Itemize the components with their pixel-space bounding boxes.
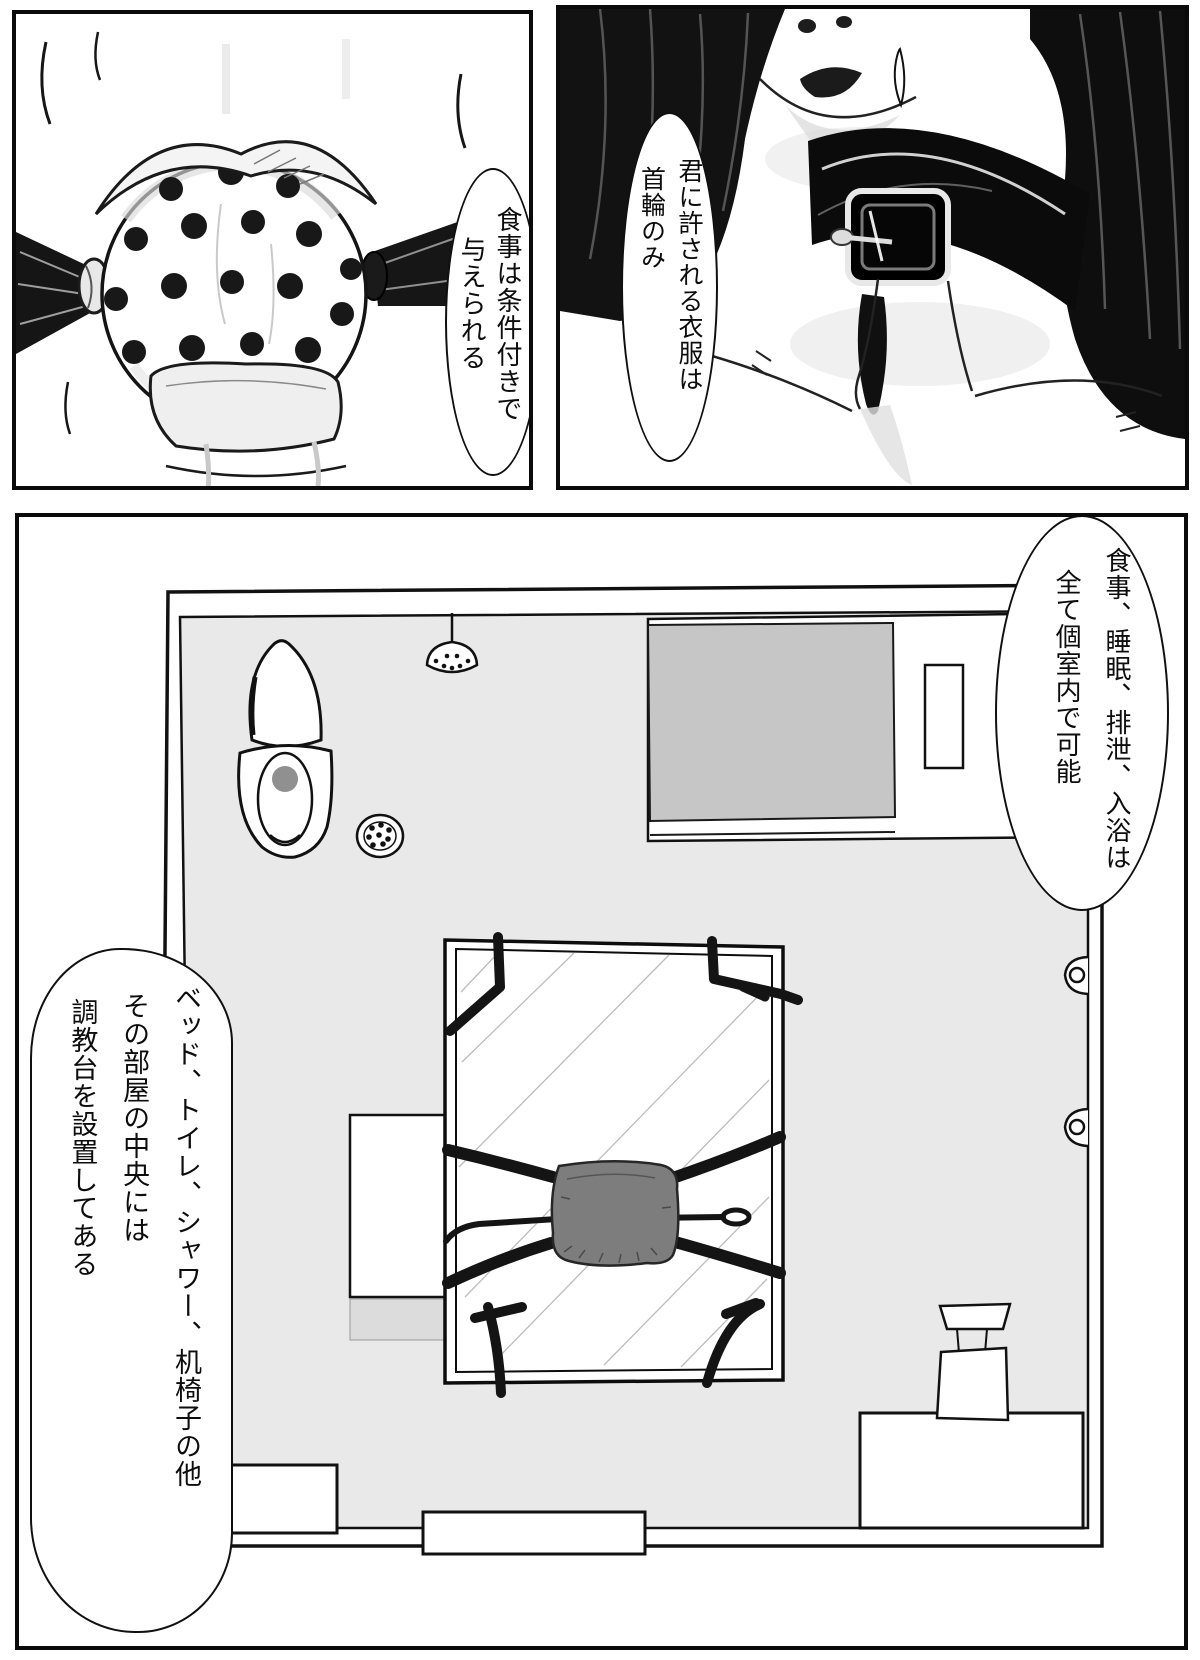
speech-bubble-clothing: 君に許される衣服は 首輪のみ: [621, 112, 718, 462]
sweat-drop: [895, 49, 904, 105]
collar-buckle: [831, 191, 948, 283]
skin-shading: [790, 302, 1050, 386]
gag-strap-left: [16, 232, 109, 354]
lower-lip: [150, 363, 346, 486]
training-platform: [445, 937, 798, 1393]
bubble-text-column: 食事は条件付きで: [489, 206, 525, 454]
bubble-text: 食事、睡眠、排泄、入浴は 全て個室内で可能: [1041, 547, 1141, 895]
bubble-text-column: 君に許される衣服は: [670, 158, 708, 442]
bubble-text-column: 全て個室内で可能: [1041, 547, 1091, 895]
cabinet: [225, 1465, 337, 1533]
lips: [800, 67, 862, 97]
restraint-cushion: [552, 1161, 678, 1265]
bubble-text: 君に許される衣服は 首輪のみ: [632, 158, 707, 442]
bubble-text-column: 食事、睡眠、排泄、入浴は: [1091, 547, 1141, 895]
speech-bubble-food: 食事は条件付きで 与えられる: [445, 168, 533, 476]
mattress: [648, 623, 895, 821]
side-table-strip: [350, 1299, 447, 1340]
bubble-text: ベッド、トイレ、シャワー、机椅子の他 その部屋の中央には 調教台を設置してある: [56, 984, 211, 1615]
toilet-drain: [272, 766, 298, 792]
bubble-text-column: その部屋の中央には: [107, 984, 159, 1615]
pillow: [925, 665, 963, 768]
bubble-text-column: 与えられる: [453, 206, 489, 454]
speech-bubble-room-contents: ベッド、トイレ、シャワー、机椅子の他 その部屋の中央には 調教台を設置してある: [30, 948, 233, 1633]
panel-bottom-floor-plan: 食事、睡眠、排泄、入浴は 全て個室内で可能 ベッド、トイレ、シャワー、机椅子の他…: [15, 513, 1188, 1650]
floor-drain: [357, 815, 403, 857]
bubble-text-column: ベッド、トイレ、シャワー、机椅子の他: [159, 984, 211, 1615]
chair: [937, 1304, 1010, 1420]
bubble-text-column: 調教台を設置してある: [56, 984, 108, 1615]
bubble-text-column: 首輪のみ: [632, 158, 670, 442]
speech-bubble-room-rules: 食事、睡眠、排泄、入浴は 全て個室内で可能: [995, 515, 1169, 911]
neck-shadow: [860, 405, 912, 485]
door: [423, 1512, 645, 1554]
desk: [860, 1413, 1083, 1528]
panel-top-right: 君に許される衣服は 首輪のみ: [556, 5, 1189, 490]
bubble-text: 食事は条件付きで 与えられる: [453, 206, 525, 454]
face-lower: [760, 16, 916, 147]
manga-page: { "page": { "kind": "comic-page" }, "col…: [0, 0, 1200, 1660]
side-table: [350, 1115, 447, 1340]
panel-top-left: 食事は条件付きで 与えられる: [12, 10, 533, 490]
